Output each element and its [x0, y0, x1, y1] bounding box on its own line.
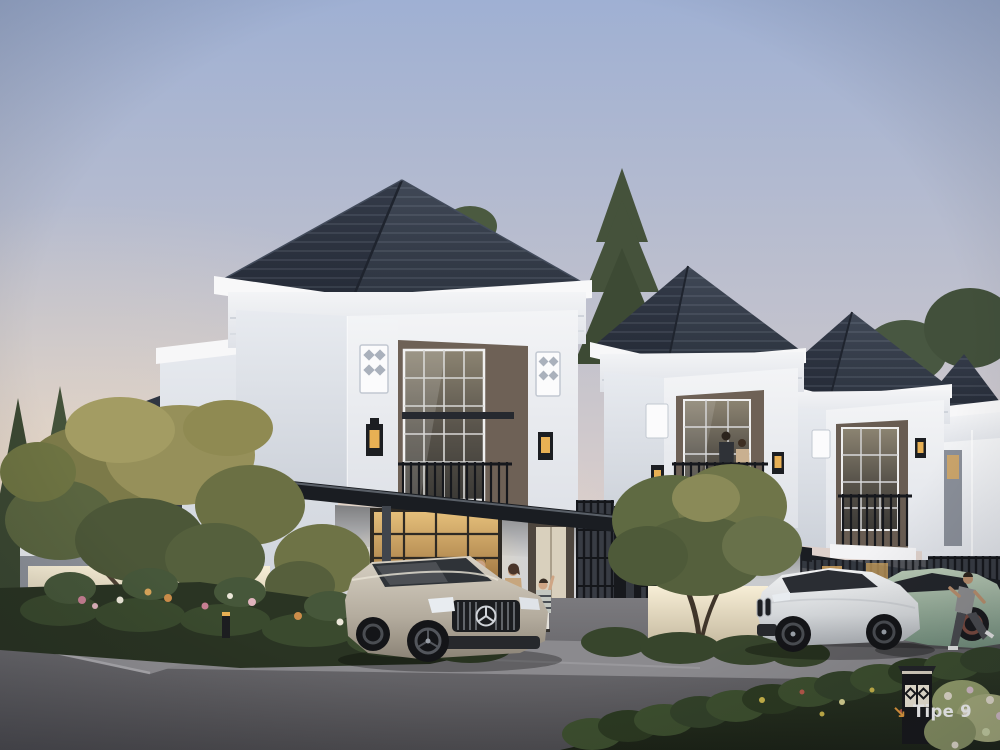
scene-canvas: ↘ Tipe 9: [0, 0, 1000, 750]
vignette-overlay: [0, 0, 1000, 750]
architectural-rendering: ↘ Tipe 9: [0, 0, 1000, 750]
